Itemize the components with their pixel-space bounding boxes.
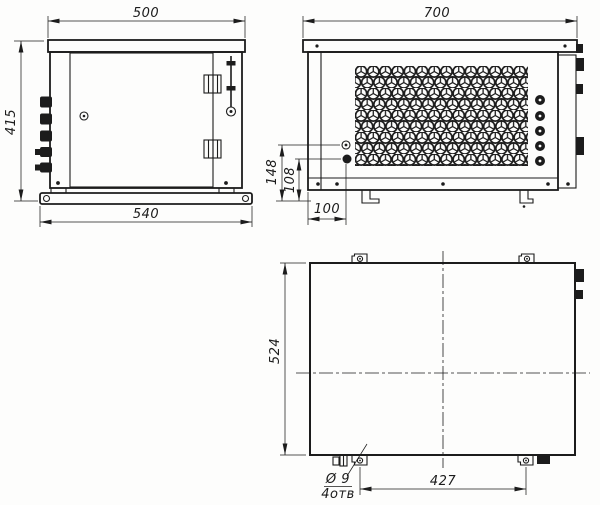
foot-screw	[56, 181, 60, 185]
side-top-panel	[303, 40, 577, 52]
base-hole-left	[44, 196, 50, 202]
dim-mount-spacing: 427	[360, 467, 526, 495]
cable-gland	[40, 114, 52, 125]
hex-bolt	[535, 141, 545, 151]
dim-label-415: 415	[4, 109, 19, 135]
door-lock	[80, 112, 88, 120]
dim-label-524: 524	[268, 338, 283, 364]
callout-count: 4отв	[321, 487, 354, 502]
hinge-tab	[576, 84, 583, 94]
mount-tab-top-left	[352, 254, 367, 263]
side-view: 700	[265, 6, 584, 225]
rail-screw	[546, 182, 550, 186]
dim-front-height: 415	[4, 41, 44, 201]
top-screw	[563, 44, 566, 47]
dim-plan-depth: 524	[268, 263, 306, 455]
base-hole-right	[243, 196, 249, 202]
cable-gland-tip	[35, 165, 40, 171]
hex-bolt	[535, 156, 545, 166]
cable-gland	[40, 97, 52, 108]
dim-label-100: 100	[314, 202, 340, 217]
latch-block	[537, 456, 550, 464]
rail-screw	[316, 182, 320, 186]
callout-diameter: Ø 9	[325, 472, 350, 487]
mount-tab-top-right	[519, 254, 534, 263]
base-plate	[40, 193, 252, 204]
mount-tab-bottom-right	[518, 455, 533, 465]
cable-gland-tip	[35, 149, 40, 155]
dim-front-width: 500	[48, 6, 245, 38]
hinge-tab-lower	[576, 290, 583, 299]
ground-terminal	[333, 455, 347, 466]
front-view: 500 415	[4, 6, 252, 227]
rail-screw	[441, 182, 445, 186]
hex-bolt	[535, 126, 545, 136]
plan-outline	[310, 263, 575, 455]
leg-right	[520, 190, 533, 203]
ventilation-grille	[355, 66, 528, 166]
dim-base-width: 540	[40, 206, 252, 227]
hinge-lower	[204, 140, 221, 158]
plan-view: 524 427 Ø 9 4отв	[268, 251, 590, 502]
technical-drawing: 500 415	[0, 0, 600, 505]
dim-label-427: 427	[430, 474, 457, 489]
bolt-column	[535, 95, 545, 166]
cable-hole-lower	[343, 155, 352, 164]
dim-side-width: 700	[303, 6, 577, 38]
dim-label-108: 108	[283, 167, 298, 193]
hinge-tab	[576, 44, 583, 53]
door-edge-strip	[558, 44, 584, 188]
door-stay-rod	[227, 56, 236, 116]
hinge-tab	[576, 58, 584, 71]
door-panel	[70, 53, 213, 187]
leg-left	[362, 190, 379, 203]
rail-screw	[335, 182, 339, 186]
top-screw	[315, 44, 318, 47]
dim-hole-lower: 108	[283, 159, 341, 201]
hinge-tab-top	[576, 269, 584, 282]
cable-gland	[40, 131, 52, 142]
front-top-panel	[48, 40, 245, 52]
dim-hole-upper: 148	[265, 145, 340, 201]
drawing-sheet: 500 415	[0, 0, 600, 505]
hinge-tab	[576, 137, 584, 155]
hinge-upper	[204, 75, 221, 93]
dim-label-148: 148	[265, 159, 280, 185]
rail-screw	[566, 182, 570, 186]
dim-label-540: 540	[133, 207, 159, 222]
hex-bolt	[535, 95, 545, 105]
hex-bolt	[535, 111, 545, 121]
dim-label-500: 500	[133, 6, 159, 21]
dim-label-700: 700	[424, 6, 450, 21]
dim-hole-offset: 100	[308, 164, 346, 225]
foot-screw	[224, 181, 228, 185]
leg-dot	[523, 205, 526, 208]
cable-hole-upper	[342, 141, 350, 149]
cable-gland	[40, 163, 52, 173]
cable-gland	[40, 147, 52, 157]
